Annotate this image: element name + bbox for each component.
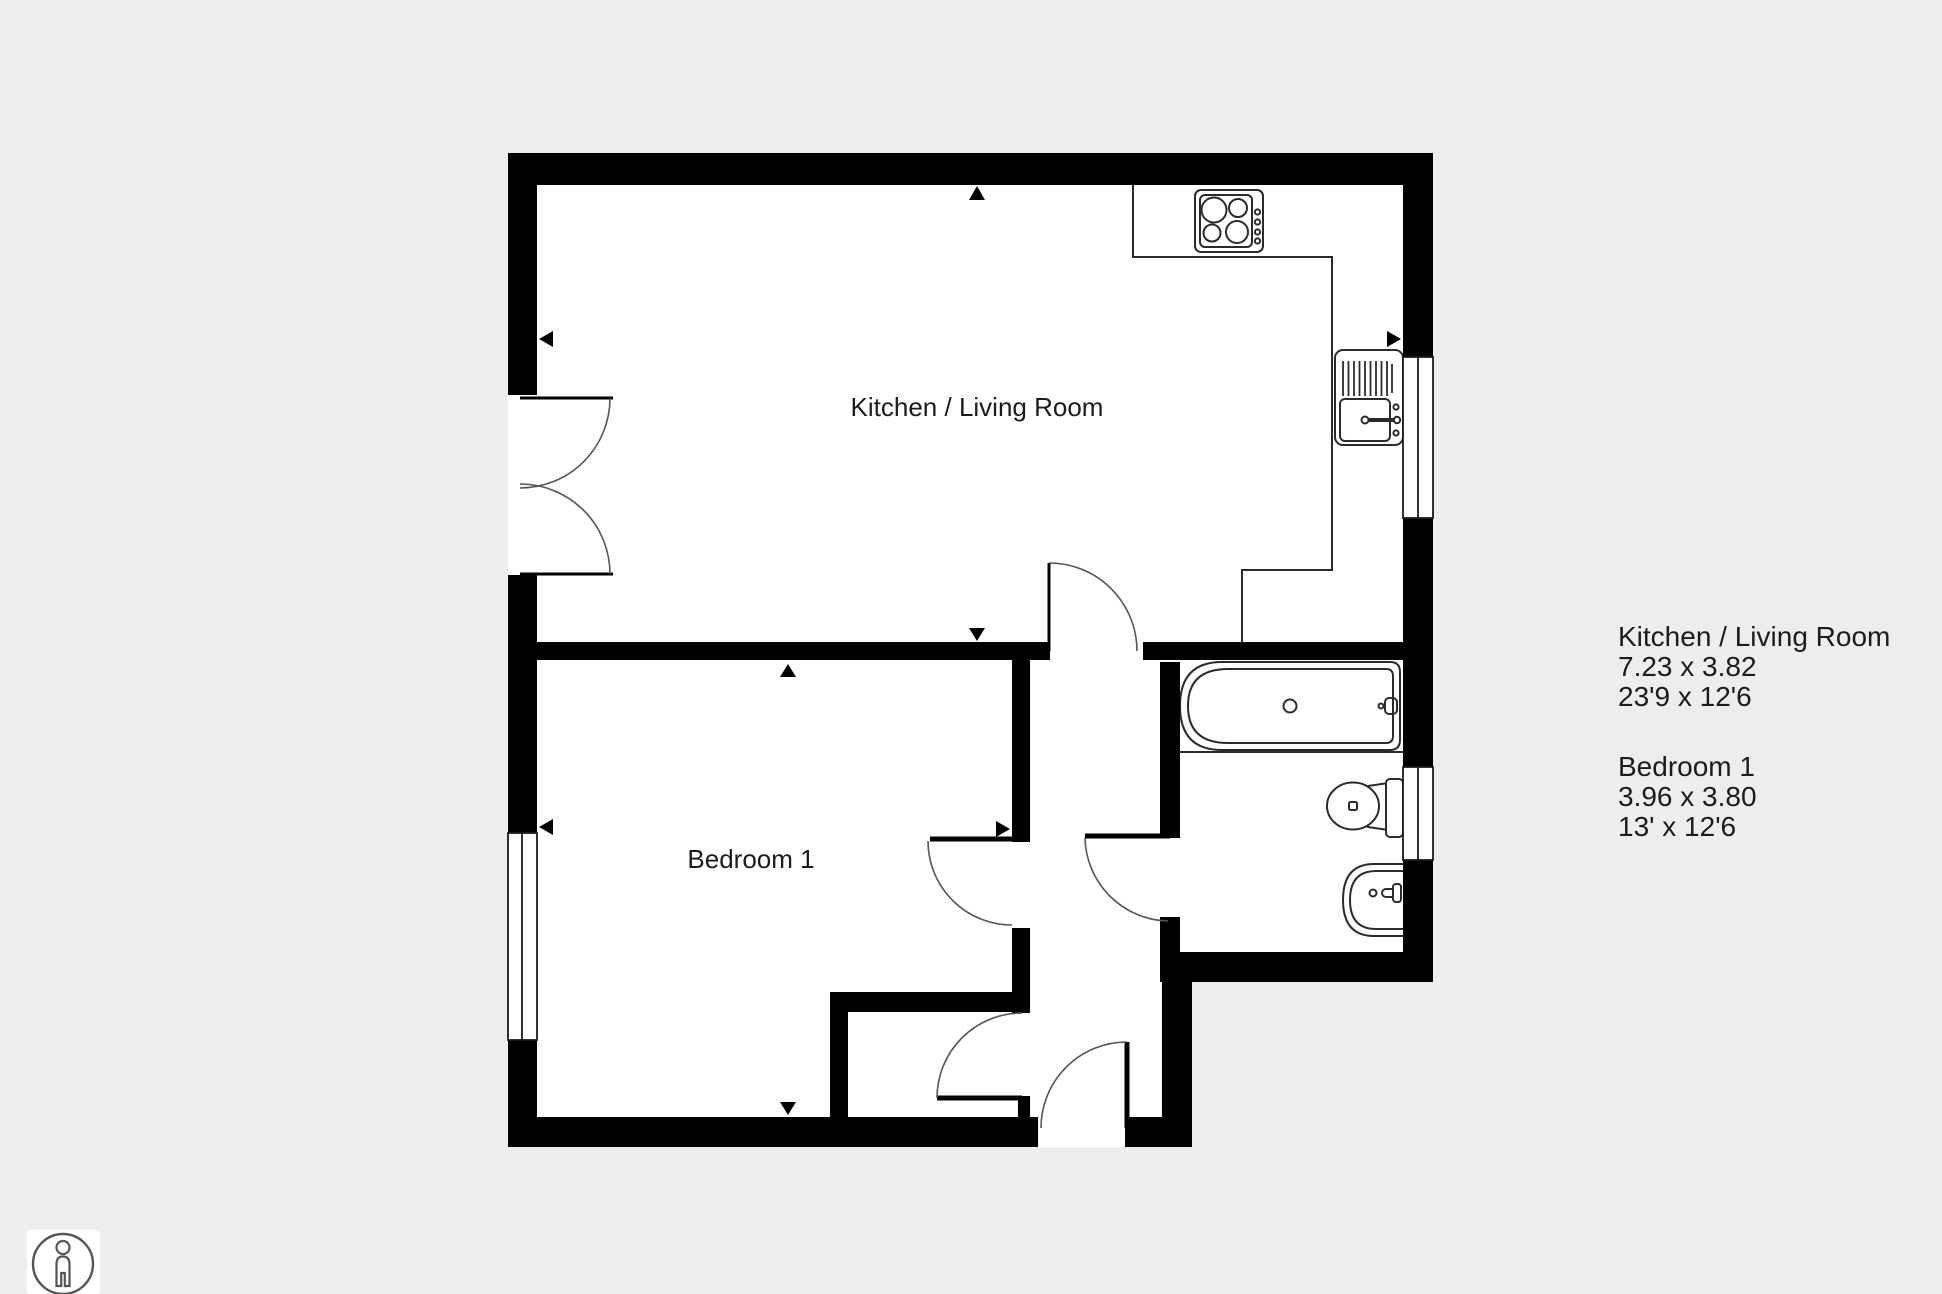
wall-bathroom-bottom — [1162, 952, 1433, 982]
legend-bedroom-1: Bedroom 1 3.96 x 3.80 13' x 12'6 — [1618, 752, 1890, 842]
kitchen-window — [1403, 357, 1433, 518]
wall-top — [508, 153, 1433, 185]
basin-icon — [1343, 864, 1403, 936]
legend-room-size-imperial: 13' x 12'6 — [1618, 812, 1890, 842]
legend-room-size-metric: 7.23 x 3.82 — [1618, 652, 1890, 682]
bedroom-window — [508, 833, 537, 1040]
wall-cupboard-left — [830, 992, 848, 1117]
wall-kitchen-divider-left — [537, 642, 1050, 660]
wall-kitchen-divider-right — [1143, 642, 1403, 660]
wall-cupboard-top — [830, 992, 1030, 1012]
wall-right-upper — [1403, 153, 1433, 357]
kitchen-living-room-label: Kitchen / Living Room — [851, 392, 1104, 422]
wall-bathroom-left-lower — [1160, 917, 1180, 982]
wall-bathroom-left-upper — [1160, 662, 1180, 838]
person-head — [57, 1241, 70, 1254]
wall-right-middle — [1403, 518, 1433, 767]
legend-room-size-metric: 3.96 x 3.80 — [1618, 782, 1890, 812]
floorplan-page: Kitchen / Living Room Bedroom 1 Kitchen … — [0, 0, 1942, 1294]
legend-kitchen-living-room: Kitchen / Living Room 7.23 x 3.82 23'9 x… — [1618, 622, 1890, 712]
legend-room-name: Bedroom 1 — [1618, 752, 1890, 782]
room-dimensions-legend: Kitchen / Living Room 7.23 x 3.82 23'9 x… — [1618, 622, 1890, 882]
legend-room-size-imperial: 23'9 x 12'6 — [1618, 682, 1890, 712]
wall-bottom-left — [508, 1117, 1038, 1147]
bedroom-1-label: Bedroom 1 — [687, 844, 814, 874]
legend-room-name: Kitchen / Living Room — [1618, 622, 1890, 652]
wall-left-upper — [508, 153, 537, 395]
bathroom-window — [1403, 767, 1433, 860]
wall-bedroom-right-upper — [1012, 642, 1030, 842]
wall-left-middle — [508, 575, 537, 833]
person-scale-icon — [27, 1230, 100, 1294]
